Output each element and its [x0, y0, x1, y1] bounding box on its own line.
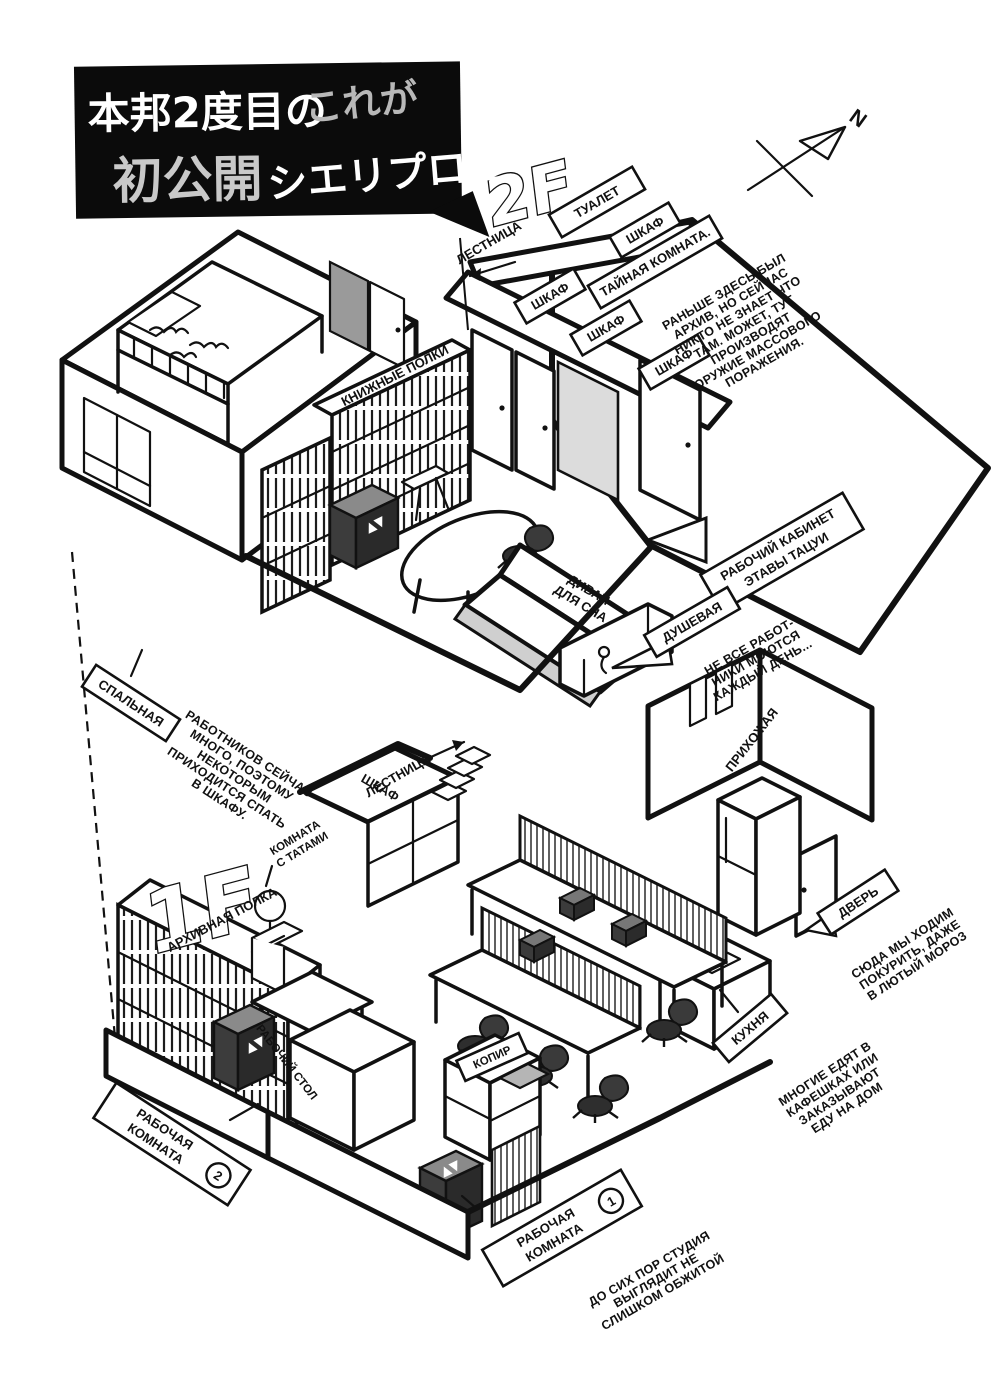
manga-floorplan-page: ▲▼	[0, 0, 996, 1400]
title-box: 本邦2度目の これが 初公開 シエリプロだ	[74, 61, 510, 243]
title-line2-main: 初公開	[112, 150, 263, 210]
tv-workroom2: ▲▼	[214, 1005, 274, 1090]
title-line1-main: 本邦2度目の	[87, 86, 327, 138]
fridge	[718, 778, 800, 935]
floorplan-illustration: ▲▼	[0, 0, 996, 1400]
